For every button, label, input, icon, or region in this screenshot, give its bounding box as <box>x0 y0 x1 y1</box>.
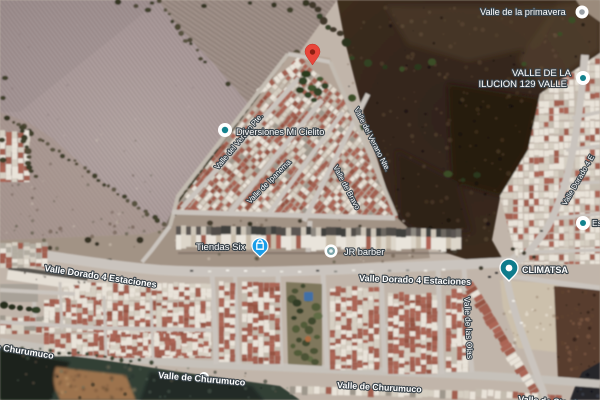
svg-text:ILUCION 129 VALLE: ILUCION 129 VALLE <box>478 79 567 90</box>
svg-text:Tiendas Six: Tiendas Six <box>196 242 246 253</box>
svg-text:JR barber: JR barber <box>344 247 384 257</box>
svg-text:VALLE DE LA: VALLE DE LA <box>512 68 572 79</box>
svg-text:Diversiones Mi Cielito: Diversiones Mi Cielito <box>236 127 324 137</box>
svg-text:Valle de la primavera: Valle de la primavera <box>480 7 567 17</box>
svg-text:Es: Es <box>592 218 600 228</box>
svg-text:CLIMATSA: CLIMATSA <box>522 265 568 275</box>
